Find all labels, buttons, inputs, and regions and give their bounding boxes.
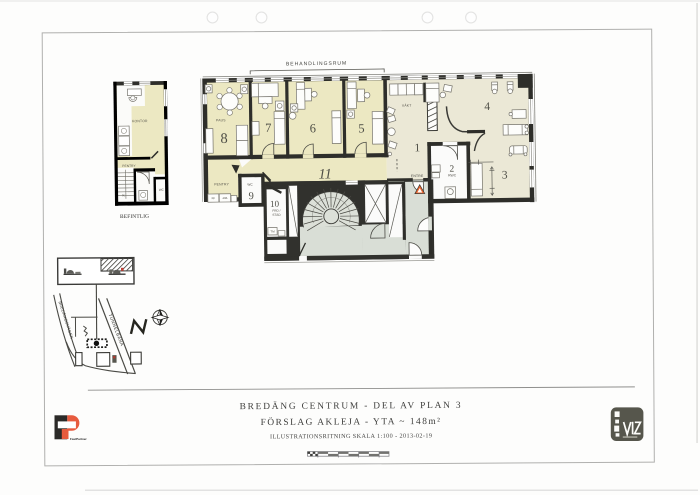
svg-text:3: 3 <box>502 169 508 181</box>
svg-text:9: 9 <box>249 191 254 202</box>
svg-text:KF: KF <box>212 196 216 200</box>
svg-text:STÄD: STÄD <box>272 213 281 217</box>
svg-text:8: 8 <box>220 131 227 147</box>
svg-text:5: 5 <box>358 121 364 135</box>
svg-text:PENTRY: PENTRY <box>122 164 136 168</box>
svg-text:WC: WC <box>159 188 165 192</box>
svg-text:PENTRY: PENTRY <box>214 182 229 186</box>
svg-text:4: 4 <box>484 101 490 113</box>
svg-text:6: 6 <box>310 121 316 135</box>
svg-text:-DM-: -DM- <box>222 196 228 200</box>
svg-text:RWC: RWC <box>448 173 457 177</box>
svg-text:BEHANDLINGSRUM: BEHANDLINGSRUM <box>286 61 347 68</box>
svg-text:FastPartner: FastPartner <box>70 437 88 441</box>
svg-text:TM: TM <box>270 230 275 234</box>
svg-text:KONTOR: KONTOR <box>132 119 148 123</box>
svg-text:BEFINTLIG: BEFINTLIG <box>120 214 149 220</box>
svg-text:ILLUSTRATIONSRITNING SKALA 1:1: ILLUSTRATIONSRITNING SKALA 1:100 - 2013-… <box>270 433 432 441</box>
svg-text:BREDÄNG CENTRUM - DEL AV PLAN: BREDÄNG CENTRUM - DEL AV PLAN 3 <box>240 399 463 412</box>
svg-text:FÖRSLAG AKLEJA - YTA ~ 148m²: FÖRSLAG AKLEJA - YTA ~ 148m² <box>261 415 442 428</box>
svg-text:7: 7 <box>265 121 271 135</box>
svg-text:10: 10 <box>270 199 280 209</box>
svg-text:VÄKT: VÄKT <box>402 104 412 108</box>
svg-text:1: 1 <box>414 142 420 154</box>
svg-text:WC: WC <box>247 183 253 187</box>
svg-text:11: 11 <box>318 166 332 182</box>
svg-text:PAUS: PAUS <box>216 118 226 122</box>
svg-text:ENTRE: ENTRE <box>411 174 424 178</box>
